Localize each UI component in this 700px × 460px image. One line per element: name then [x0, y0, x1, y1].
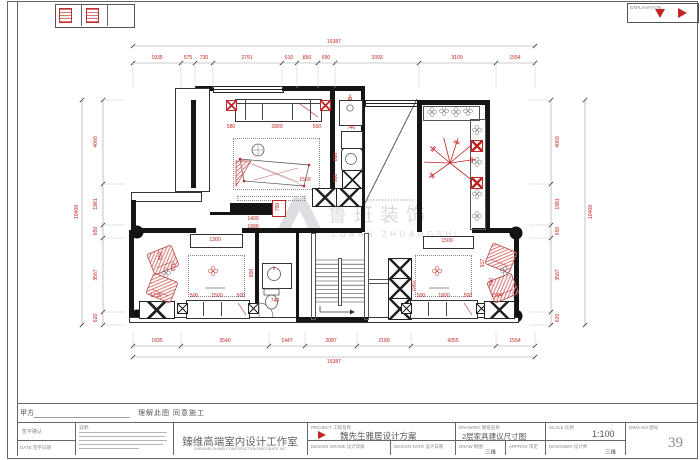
- dim-label: 3540: [219, 338, 230, 343]
- notes-label: 说明:: [79, 425, 89, 431]
- dim-label: 730: [200, 55, 209, 60]
- stair-wall: [311, 233, 316, 320]
- sign-label: 签字确认: [22, 428, 42, 435]
- side-table-marker: [320, 100, 331, 111]
- scale-value: 1:100: [592, 429, 615, 439]
- wall: [255, 233, 259, 303]
- wall: [282, 86, 335, 91]
- dwgno-label: DWG.NO 图号: [629, 425, 658, 431]
- wall: [131, 200, 136, 230]
- sofa-cushion-line: [262, 103, 263, 120]
- dim-label: 500: [417, 293, 426, 298]
- dim-label: 1982: [411, 280, 416, 291]
- approv-label: APPROV 审定: [509, 444, 538, 450]
- dim-label: 1554: [491, 293, 502, 298]
- wall: [296, 233, 299, 318]
- wall: [296, 317, 368, 322]
- wall: [131, 228, 196, 233]
- dwgno-value: 39: [668, 435, 683, 452]
- sofa-cushion-line: [428, 302, 429, 316]
- dim-label: 850: [303, 55, 312, 60]
- red-seal-stamp: [59, 8, 72, 23]
- dim-label: 650: [93, 227, 98, 236]
- stair-stringer: [338, 258, 342, 306]
- dim-label: 3567: [93, 269, 98, 280]
- dim-label: 2791: [241, 55, 252, 60]
- cabinet-hatched: [336, 188, 363, 207]
- scale-label: SCALE 比例: [549, 425, 574, 431]
- titleblock-line: [173, 422, 174, 455]
- window-seat: [484, 301, 515, 319]
- titleblock-line: [625, 422, 626, 455]
- side-table: [248, 303, 259, 314]
- plant-marker: [471, 177, 483, 189]
- design-grade-label: DESIGN GRADE 设计等级: [311, 444, 365, 450]
- cabinet-hatched: [342, 170, 363, 190]
- company-name-en: ZHENWEI SHINEI CONSTRUCTION DECORATE INC: [194, 447, 286, 451]
- tv-cabinet: [230, 203, 277, 212]
- side-table: [401, 303, 412, 314]
- dim-total: 16387: [327, 39, 341, 44]
- draw-label: DRAW 制图: [459, 444, 483, 450]
- dim-label: 620: [555, 314, 560, 323]
- dim-label: 580: [227, 124, 236, 129]
- dim-label: 800: [333, 153, 338, 162]
- wall: [129, 230, 134, 322]
- north-triangle-icon: [655, 9, 665, 18]
- dim-label: 4355: [447, 338, 458, 343]
- titleblock-line: [75, 422, 76, 455]
- dim-label: 1554: [509, 338, 520, 343]
- dim-label: 690: [322, 55, 331, 60]
- dim-label: 2087: [325, 338, 336, 343]
- dim-label: 610: [285, 55, 294, 60]
- dim-label: 2180: [378, 338, 389, 343]
- wall: [417, 100, 490, 105]
- dim-label: 575: [184, 55, 193, 60]
- side-table: [177, 303, 188, 314]
- dim-label: 3109: [451, 55, 462, 60]
- sofa-cushion-line: [446, 302, 447, 316]
- dim-label: 1935: [151, 55, 162, 60]
- dim-label: 1447: [281, 338, 292, 343]
- wall: [242, 228, 362, 233]
- dim-label: 1981: [555, 198, 560, 209]
- cabinet-hatched: [312, 188, 338, 207]
- rug: [415, 255, 472, 297]
- tv-shelf: [237, 196, 305, 201]
- dim-label: 1300: [209, 237, 220, 242]
- tall-cabinet: [388, 258, 412, 280]
- tall-cabinet: [388, 278, 412, 300]
- dim-label: 790: [489, 278, 494, 287]
- dim-label: 1935: [151, 338, 162, 343]
- dim-total: 10408: [588, 205, 593, 219]
- dim-label: 1500: [211, 293, 222, 298]
- titleblock-line: [17, 422, 697, 423]
- approval-statement: 理解此图 同意施工: [138, 408, 205, 418]
- dim-label: 1981: [93, 198, 98, 209]
- design-date-label: DESIGN DATE 设计日期: [394, 444, 443, 450]
- project-arrow-icon: [318, 431, 326, 439]
- sofa-cushion-line: [203, 302, 204, 316]
- inner-border-line: [17, 1, 18, 456]
- wall: [191, 100, 196, 188]
- basin-cabinet: [262, 263, 292, 289]
- plant-marker: [471, 140, 483, 152]
- notes-text-line: [79, 440, 167, 441]
- dim-label: 600: [333, 174, 338, 183]
- dim-total: 16387: [327, 359, 341, 364]
- dim-label: 740: [271, 298, 280, 303]
- arrow-triangle-icon: [678, 8, 687, 18]
- dim-label: 4060: [93, 136, 98, 147]
- stamp-divider: [81, 4, 82, 26]
- sofa-cushion-line: [221, 302, 222, 316]
- dim-label: 1550: [299, 177, 310, 182]
- drawing-value: 2层家具建议尺寸图: [462, 431, 526, 442]
- notes-text-line: [79, 448, 139, 449]
- dim-label: 1735: [150, 293, 161, 298]
- side-table-marker: [226, 100, 237, 111]
- dim-label: 1500: [441, 238, 452, 243]
- dim-label: 500: [237, 293, 246, 298]
- notes-text-line: [79, 444, 163, 445]
- handrail: [368, 279, 390, 284]
- titleblock-line: [545, 422, 546, 455]
- dim-label: 2800: [271, 124, 282, 129]
- date-label: DATE 签字日期: [20, 445, 51, 451]
- dim-label: 620: [93, 314, 98, 323]
- dim-label: 1554: [509, 55, 520, 60]
- wall-step: [131, 192, 202, 202]
- dim-label: 917: [480, 259, 485, 268]
- window: [213, 86, 284, 93]
- drawing-sheet: EXPLANATION 鲁班装饰 LUBAN ZHUANGSHI: [0, 0, 700, 460]
- signature-line: [34, 417, 130, 418]
- titleblock-line: [390, 440, 391, 455]
- appliance-fridge: [339, 100, 363, 126]
- sofa-back-line: [235, 103, 320, 104]
- titleblock-line: [505, 440, 506, 455]
- dim-label: 650: [555, 227, 560, 236]
- dim-label: 500: [313, 124, 322, 129]
- titleblock-line: [455, 422, 456, 455]
- dim-label: 4060: [555, 136, 560, 147]
- party-a-label: 甲方: [20, 408, 34, 418]
- draw-value: 三维: [485, 448, 496, 456]
- dim-label: 1800: [438, 293, 449, 298]
- stamp-divider: [107, 4, 108, 26]
- dim-total: 10408: [74, 205, 79, 219]
- window-seat: [139, 301, 175, 319]
- titleblock-line: [307, 422, 308, 455]
- notes-text-line: [79, 436, 165, 437]
- sofa-cushion-line: [292, 103, 293, 120]
- dim-label: 850: [158, 252, 163, 261]
- wall: [417, 105, 422, 232]
- designer-label: DESIGNER 设计师: [549, 444, 587, 450]
- dim-label: 871: [171, 263, 176, 272]
- dim-label: 1888: [247, 224, 258, 229]
- dim-label: 1400: [247, 216, 258, 221]
- titleblock-line: [17, 403, 697, 404]
- dim-label: 500: [190, 293, 199, 298]
- red-seal-stamp: [86, 8, 99, 23]
- dim-label: 746: [347, 125, 356, 130]
- plant-stand: [470, 119, 486, 230]
- window: [365, 100, 419, 107]
- sofa: [410, 300, 478, 319]
- stair-wall: [364, 233, 369, 320]
- notes-text-line: [79, 432, 167, 433]
- sofa: [186, 300, 250, 319]
- dim-label: 500: [464, 293, 473, 298]
- rug: [188, 255, 245, 297]
- dim-label: 800: [249, 269, 254, 278]
- cabinet: [341, 131, 363, 149]
- dim-label: 700: [275, 203, 280, 212]
- sink-fixture: [341, 148, 363, 172]
- designer-value: 三维: [605, 448, 616, 456]
- dim-label: 3393: [371, 55, 382, 60]
- project-value: 魏先生雅居设计方案: [340, 430, 417, 442]
- titleblock-line: [17, 440, 75, 441]
- dim-label: 3567: [555, 269, 560, 280]
